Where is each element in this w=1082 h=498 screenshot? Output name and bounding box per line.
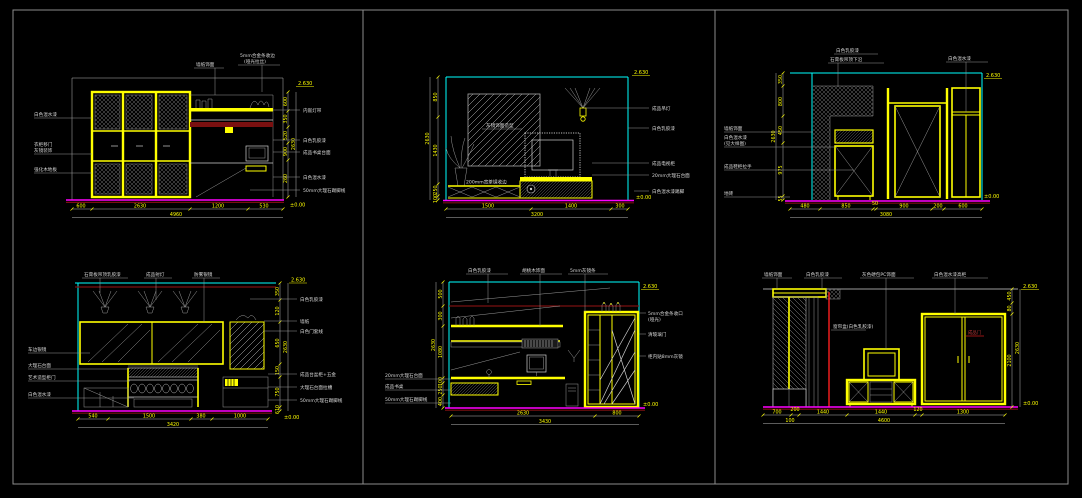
door xyxy=(888,88,947,199)
curtain-label: 窗帘盒(白色乳胶漆) xyxy=(833,323,874,330)
wall-shelves xyxy=(451,316,563,348)
annotation-label: 成品射灯 xyxy=(146,271,165,278)
dim-total: 3200 xyxy=(531,212,543,218)
p1-bottom-dimensions: 600 2630 1200 530 4960 xyxy=(71,204,285,219)
dim-text: 100 xyxy=(433,194,439,203)
annotation-label: 成品电视柜 xyxy=(652,160,675,167)
elevation-entrance: 350 800 450 975 55 2630 白色乳胶漆 石膏板吊顶下沿 白色… xyxy=(724,47,1002,218)
annotation-label: 5mm合金条收边 xyxy=(240,52,275,59)
side-mirror xyxy=(230,322,264,369)
dim-text: 120 xyxy=(275,306,281,315)
dim-text: 200 xyxy=(790,407,799,413)
dim-total: 3080 xyxy=(880,212,892,218)
annotation-label: 墙纸 xyxy=(300,318,310,325)
dim-text: 120 xyxy=(913,407,922,413)
stand-label: 200mm宽茶镜收边 xyxy=(466,179,507,186)
dim-text: 800 xyxy=(612,411,621,417)
dim-text: 2630 xyxy=(517,411,529,417)
elevation-study: 500 300 1080 100 250 400 2630 2630 800 3… xyxy=(385,267,683,425)
elevation-marker-top: 2.630 xyxy=(298,81,312,87)
dim-text: 260 xyxy=(283,174,289,183)
dim-text: 600 xyxy=(283,97,289,106)
dim-text: 55 xyxy=(778,195,784,201)
annotation-label: 防雾银镜 xyxy=(194,271,213,278)
dim-text: 1430 xyxy=(433,144,439,156)
annotation-label: 白色混水漆高柜 xyxy=(934,271,967,278)
annotation-label: 内嵌灯带 xyxy=(303,107,322,114)
elevation-tv-wall: 灰镜饰面造型 200mm宽茶镜收边 850 1430 250 xyxy=(425,70,690,218)
annotation-label: 墙纸饰面 xyxy=(196,61,215,68)
dim-text: 530 xyxy=(259,204,268,210)
dim-text: 80 xyxy=(1007,305,1013,311)
annotation-label: 车边银镜 xyxy=(28,346,47,353)
annotation-label: 强化木地板 xyxy=(34,166,57,173)
dim-total: 3430 xyxy=(539,419,551,425)
annotation-label: (见大样图) xyxy=(724,140,746,147)
dim-text: 600 xyxy=(76,204,85,210)
elevation-marker-top: 2.630 xyxy=(291,278,305,284)
p2-bottom-dimensions: 1500 1400 300 3200 xyxy=(445,204,630,219)
dim-text: 900 xyxy=(283,147,289,156)
annotation-label: 白色混水漆 xyxy=(948,55,971,62)
mirror-panel xyxy=(468,94,540,166)
dim-text: 750 xyxy=(275,387,281,396)
annotation-label: 白色混水漆 xyxy=(724,134,747,141)
bookcase xyxy=(585,302,638,407)
annotation-label: 50mm大理石踢脚线 xyxy=(300,397,343,404)
dim-total: 4600 xyxy=(878,418,890,424)
desk-section xyxy=(190,95,273,197)
p4-top-annotations: 石膏板吊顶乳胶漆 成品射灯 防雾银镜 xyxy=(82,271,220,322)
annotation-label: 石膏板吊顶乳胶漆 xyxy=(84,271,121,278)
annotation-label: 5mm灰镜条 xyxy=(570,267,596,274)
dim-text: 450 xyxy=(778,126,784,135)
ceiling-lights xyxy=(93,291,197,313)
annotation-label: (哑光) xyxy=(648,316,661,323)
dim-text: 600 xyxy=(958,204,967,210)
elevation-marker-top: 2.630 xyxy=(634,70,648,76)
mirror-label: 灰镜饰面造型 xyxy=(486,122,514,129)
wardrobe-door-panels xyxy=(95,95,187,194)
tv xyxy=(864,349,899,380)
dim-text: 1440 xyxy=(817,410,829,416)
annotation-label: 艺术造型柜门 xyxy=(28,374,56,381)
elevation-marker-bottom: ±0.00 xyxy=(284,415,299,421)
elevation-wardrobe-desk: 600 2630 1200 530 4960 600 350 520 900 2… xyxy=(34,52,346,218)
annotation-label: 20mm大理石台面 xyxy=(652,172,690,179)
dim-text: 350 xyxy=(778,75,784,84)
annotation-label: 白色乳胶漆 xyxy=(468,267,491,274)
annotation-label: 灰镜装饰 xyxy=(34,147,53,154)
dim-text: 1080 xyxy=(438,346,444,358)
p1-left-annotations: 白色混水漆 衣柜移门 灰镜装饰 强化木地板 xyxy=(34,111,92,173)
p4-bottom-dimensions: 540 1500 380 1000 3420 xyxy=(77,414,270,429)
dim-text: 380 xyxy=(196,414,205,420)
dim-text: 150 xyxy=(275,366,281,375)
dim-text: 500 xyxy=(438,289,444,298)
elevation-vanity: 540 1500 380 1000 3420 350 120 650 150 7… xyxy=(28,271,343,428)
dim-text: 50 xyxy=(872,201,878,207)
right-wardrobe: 成品门 xyxy=(922,314,1005,404)
p2-right-annotations: 成品吊灯 白色乳胶漆 成品电视柜 20mm大理石台面 白色混水漆踢脚 2.630… xyxy=(585,70,690,201)
dim-text: 520 xyxy=(283,131,289,140)
annotation-label: 石膏板吊顶下沿 xyxy=(830,56,863,63)
p5-top-annotations: 白色乳胶漆 胡桃木饰面 5mm灰镜条 xyxy=(466,267,608,326)
annotation-label: 白色乳胶漆 xyxy=(806,271,829,278)
annotation-label: 柜内贴8mm灰镜 xyxy=(648,353,683,360)
elevation-marker-bottom: ±0.00 xyxy=(1023,401,1038,407)
tv-cabinet xyxy=(847,380,915,407)
annotation-label: 清玻璃门 xyxy=(648,331,667,338)
annotation-label: 白色混水漆 xyxy=(28,391,51,398)
dim-text: 800 xyxy=(778,97,784,106)
elevation-marker-bottom: ±0.00 xyxy=(643,402,658,408)
elevation-marker-top: 2.630 xyxy=(1023,284,1037,290)
main-mirror xyxy=(80,322,223,364)
dim-total: 2630 xyxy=(425,132,431,144)
dim-text: 650 xyxy=(275,338,281,347)
dim-text: 350 xyxy=(275,287,281,296)
dim-total: 2630 xyxy=(1015,342,1021,354)
elevation-marker-bottom: ±0.00 xyxy=(984,194,999,200)
dim-text: 250 xyxy=(433,185,439,194)
annotation-label: 白色乳胶漆 xyxy=(303,137,326,144)
annotation-label: 20mm大理石台面 xyxy=(385,372,423,379)
dim-text: 200 xyxy=(933,204,942,210)
dim-text: 300 xyxy=(438,311,444,320)
dim-text: 1300 xyxy=(957,410,969,416)
p6-side-dimensions: 450 80 2100 2630 2.630 ±0.00 xyxy=(1007,284,1039,409)
annotation-label: 墙纸饰面 xyxy=(764,271,783,278)
annotation-label: (哑光拉丝) xyxy=(244,58,266,65)
dim-text: 2100 xyxy=(1007,354,1013,366)
dim-text: 300 xyxy=(615,204,624,210)
dim-text: 480 xyxy=(800,204,809,210)
annotation-label: 大理石台面拉槽 xyxy=(300,384,333,391)
low-bench xyxy=(448,186,520,198)
dim-text: 1400 xyxy=(565,204,577,210)
tv-stand xyxy=(520,177,592,198)
shoe-cabinet xyxy=(835,130,873,200)
dim-total: 3420 xyxy=(167,422,179,428)
dim-total: 2630 xyxy=(291,138,297,150)
dim-text: 540 xyxy=(88,414,97,420)
annotation-label: 50mm大理石踢脚线 xyxy=(303,187,346,194)
annotation-label: 成品鞋柜拉手 xyxy=(724,163,752,170)
cad-drawing-canvas: 600 2630 1200 530 4960 600 350 520 900 2… xyxy=(0,0,1082,498)
annotation-label: 灰色硬包PC饰面 xyxy=(862,271,896,278)
elevation-marker-bottom: ±0.00 xyxy=(636,195,651,201)
p3-side-dimensions: 350 800 450 975 55 2630 xyxy=(771,72,785,202)
dim-total: 2630 xyxy=(283,341,289,353)
annotation-label: 地砖 xyxy=(724,190,734,197)
elevation-bedroom: 窗帘盒(白色乳胶漆) 成品门 墙纸饰面 白色乳胶漆 灰色硬包PC饰面 xyxy=(762,271,1040,424)
annotation-label: 大理石台面 xyxy=(28,362,51,369)
cad-sheet: 600 2630 1200 530 4960 600 350 520 900 2… xyxy=(0,0,1082,498)
p2-side-dimensions: 850 1430 250 100 2630 xyxy=(425,76,440,204)
annotation-label: 白色乳胶漆 xyxy=(652,125,675,132)
elevation-marker-bottom: ±0.00 xyxy=(290,203,305,209)
p5-right-annotations: 5mm合金条收口 (哑光) 清玻璃门 柜内贴8mm灰镜 xyxy=(639,310,683,360)
dim-text: 450 xyxy=(1007,291,1013,300)
left-wedge-cabinet xyxy=(84,388,128,407)
dim-total: 4960 xyxy=(170,212,182,218)
annotation-label: 白色混水漆 xyxy=(34,111,57,118)
left-wardrobe xyxy=(773,297,806,407)
annotation-label: 白色乳胶漆 xyxy=(836,47,859,54)
annotation-label: 成品书桌台面 xyxy=(303,149,331,156)
dim-total: 2630 xyxy=(431,339,437,351)
vanity-cabinet xyxy=(128,366,198,407)
annotation-label: 白色门套线 xyxy=(300,328,323,335)
p4-left-annotations: 车边银镜 大理石台面 艺术造型柜门 白色混水漆 xyxy=(28,346,134,398)
hatched-bulkhead xyxy=(830,86,873,116)
annotation-label: 50mm大理石踢脚线 xyxy=(385,396,428,403)
annotation-label: 成品台盆柜+五金 xyxy=(300,371,336,378)
elevation-marker-top: 2.630 xyxy=(986,73,1000,79)
dim-text: 700 xyxy=(772,410,781,416)
dim-text: 1200 xyxy=(212,204,224,210)
dim-text: 900 xyxy=(899,204,908,210)
p1-top-annotations: 墙纸饰面 5mm合金条收边 (哑光拉丝) xyxy=(194,52,280,95)
dim-text: 1500 xyxy=(482,204,494,210)
annotation-label: 胡桃木饰面 xyxy=(522,267,545,274)
annotation-label: 白色混水漆踢脚 xyxy=(652,188,685,195)
elevation-marker-top: 2.630 xyxy=(643,284,657,290)
dim-text: 400 xyxy=(438,397,444,406)
dim-text: 850 xyxy=(433,92,439,101)
annotation-label: 白色乳胶漆 xyxy=(300,296,323,303)
p5-bottom-dimensions: 2630 800 3430 xyxy=(450,411,641,426)
annotation-label: 衣柜移门 xyxy=(34,141,53,148)
dim-sub: 100 xyxy=(785,418,794,424)
hatched-wall xyxy=(813,86,830,200)
dim-text: 1500 xyxy=(143,414,155,420)
dim-text: 350 xyxy=(283,114,289,123)
annotation-label: 墙纸饰面 xyxy=(724,125,743,132)
dim-text: 1000 xyxy=(234,414,246,420)
annotation-label: 白色混水漆 xyxy=(303,174,326,181)
dim-text: 850 xyxy=(841,204,850,210)
door-label: 成品门 xyxy=(968,329,981,336)
dim-text: 1440 xyxy=(875,410,887,416)
dim-text: 100 xyxy=(438,377,444,386)
dim-text: 610 xyxy=(275,405,281,414)
right-lower-cabinet xyxy=(223,377,268,407)
annotation-label: 5mm合金条收口 xyxy=(648,310,683,317)
pendant-lamp xyxy=(565,88,600,121)
annotation-label: 成品书桌 xyxy=(385,383,404,390)
annotation-label: 成品吊灯 xyxy=(652,105,671,112)
dim-text: 2630 xyxy=(134,204,146,210)
desk xyxy=(451,350,580,406)
